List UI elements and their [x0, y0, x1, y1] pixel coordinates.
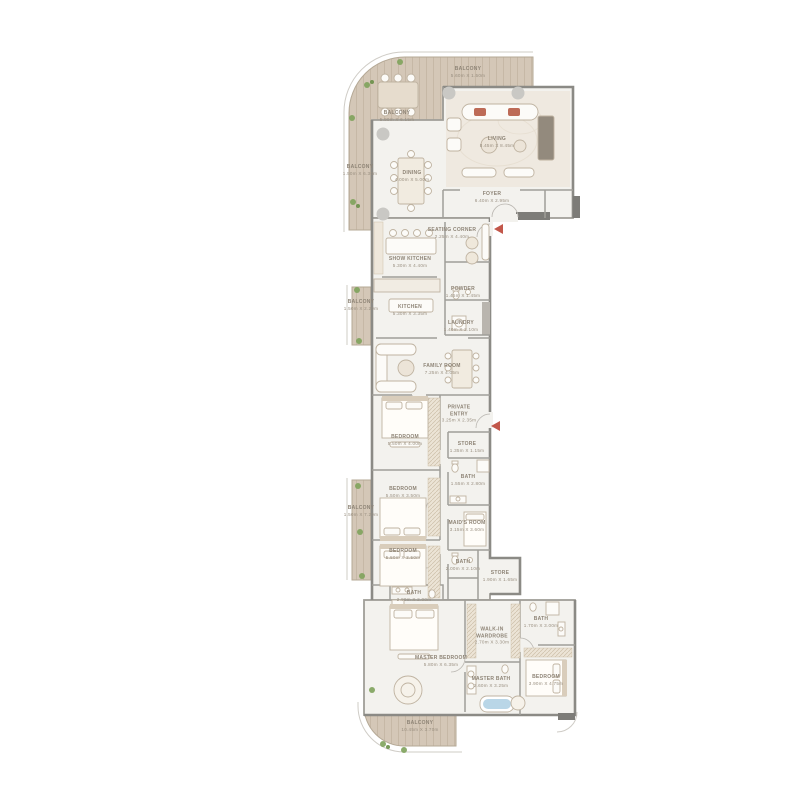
structural-column-icon [512, 87, 525, 100]
plant-icon [369, 687, 375, 693]
plant-icon [386, 745, 390, 749]
plant-icon [370, 80, 374, 84]
plant-icon [349, 115, 355, 121]
bottom-right-stub [558, 713, 575, 720]
plant-icon [380, 741, 386, 747]
entry-core-stub [573, 196, 580, 218]
wardrobe-bedroom1 [428, 398, 440, 466]
plant-icon [350, 199, 356, 205]
wardrobe-walkin-left [467, 604, 476, 658]
structural-column-icon [443, 87, 456, 100]
entry-markers [491, 224, 503, 431]
master-lounge-chair [394, 676, 422, 704]
service-shaft-wall [482, 302, 490, 335]
plant-icon [359, 573, 365, 579]
wardrobe-walkin-right [511, 604, 520, 658]
laundry-machine [452, 316, 466, 330]
balcony-table-set [378, 74, 418, 116]
plant-icon [364, 82, 370, 88]
maid-room-bed [464, 512, 486, 546]
floor-plan-drawing [0, 0, 800, 800]
plant-icon [355, 483, 361, 489]
wardrobe-bedroom4 [524, 648, 572, 657]
bedroom2-bed [380, 498, 426, 541]
balcony-deck-left-small [352, 287, 372, 345]
bedroom3-bed [380, 544, 426, 586]
main-entry-gap [490, 214, 518, 222]
structural-column-icon [377, 208, 390, 221]
plant-icon [357, 529, 363, 535]
plant-icon [354, 287, 360, 293]
plant-icon [397, 59, 403, 65]
plant-icon [356, 338, 362, 344]
wardrobe-bedroom2 [428, 478, 440, 536]
outer-wall-mid-right [490, 218, 520, 594]
plant-icon [401, 747, 407, 753]
floor-plan-canvas: BALCONY5.60m X 1.50m BALCONY5.90m X 6.15… [0, 0, 800, 800]
cabinet-show-kitchen [374, 222, 383, 274]
structural-column-icon [377, 128, 390, 141]
plant-icon [356, 204, 360, 208]
entry-arrow-icon [494, 224, 503, 234]
